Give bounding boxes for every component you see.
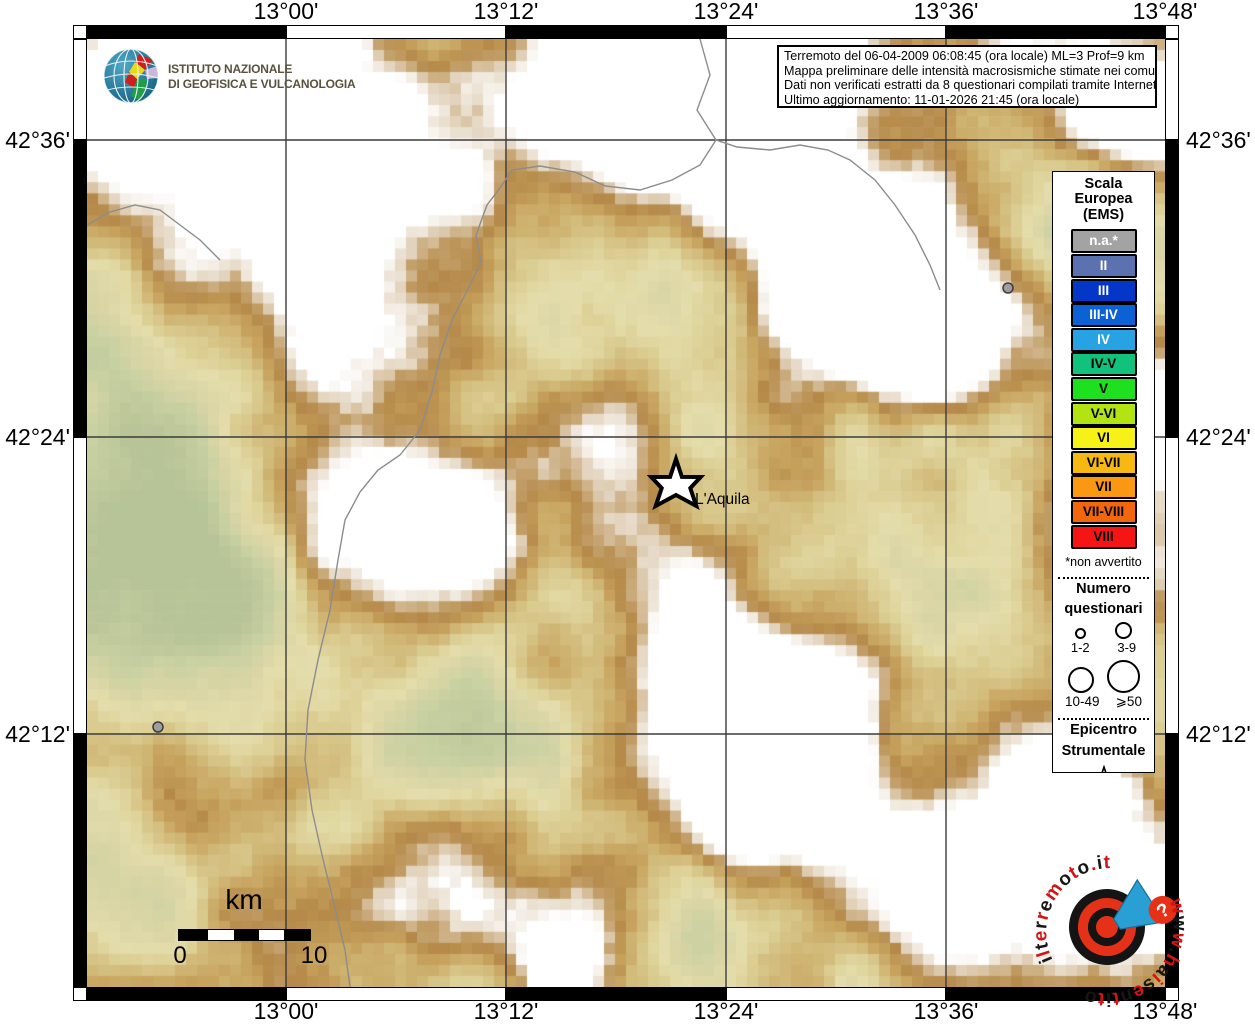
axis-label-lon-bottom-2: 13°24' bbox=[694, 998, 759, 1025]
legend-title-line: Europea bbox=[1053, 192, 1154, 207]
questionnaire-size-icon-small bbox=[1075, 628, 1086, 639]
questionnaire-bin-label: 3-9 bbox=[1117, 640, 1136, 655]
ingv-logo-text: ISTITUTO NAZIONALE DI GEOFISICA E VULCAN… bbox=[168, 62, 356, 91]
graticule-lines bbox=[87, 39, 1165, 987]
map-frame-segment bbox=[73, 39, 87, 140]
questionnaire-bin-label: 10-49 bbox=[1065, 694, 1100, 710]
questionnaire-bin-label: 1-2 bbox=[1071, 640, 1090, 655]
axis-label-lat-right-2: 42°12' bbox=[1186, 721, 1255, 748]
map-frame-segment bbox=[726, 25, 946, 39]
axis-label-lat-right-0: 42°36' bbox=[1186, 127, 1255, 154]
axis-label-lon-top-2: 13°24' bbox=[694, 0, 759, 25]
axis-label-lon-bottom-3: 13°36' bbox=[914, 998, 979, 1025]
axis-label-lat-left-2: 42°12' bbox=[0, 721, 70, 748]
scalebar-segment bbox=[208, 930, 234, 940]
info-line-event: Terremoto del 06-04-2009 06:08:45 (ora l… bbox=[784, 49, 1150, 64]
legend-footnote: *non avvertito bbox=[1053, 555, 1154, 569]
map-frame-segment bbox=[1165, 140, 1179, 437]
legend-title-line: Scala bbox=[1053, 177, 1154, 192]
legend-class-vii-viii: VII-VIII bbox=[1071, 500, 1137, 524]
scalebar-segment bbox=[234, 930, 259, 940]
ingv-org-line2: DI GEOFISICA E VULCANOLOGIA bbox=[168, 77, 356, 92]
legend-class-viii: VIII bbox=[1071, 525, 1137, 549]
scalebar-end-label: 10 bbox=[292, 942, 336, 970]
legend-class-iv-v: IV-V bbox=[1071, 352, 1137, 376]
epicenter-star-icon bbox=[1091, 765, 1117, 773]
map-frame-segment bbox=[946, 25, 1165, 39]
legend-class-vii: VII bbox=[1071, 475, 1137, 499]
epicenter-place-label: L'Aquila bbox=[695, 491, 750, 508]
haisentitoilterremoto-watermark: ? ilterremoto.it www.haisentito bbox=[1027, 847, 1187, 1007]
map-frame-segment bbox=[506, 987, 726, 1001]
map-frame-segment bbox=[286, 25, 506, 39]
ingv-logo-globe bbox=[101, 46, 161, 106]
axis-label-lon-bottom-0: 13°00' bbox=[254, 998, 319, 1025]
scalebar-segment bbox=[179, 930, 208, 940]
legend-title-line: (EMS) bbox=[1053, 208, 1154, 223]
legend-class-ii: II bbox=[1071, 254, 1137, 278]
scalebar-unit-label: km bbox=[204, 884, 284, 916]
axis-label-lon-top-3: 13°36' bbox=[914, 0, 979, 25]
legend-class-vi-vii: VI-VII bbox=[1071, 451, 1137, 475]
map-frame-segment bbox=[73, 25, 87, 39]
epicenter-section-title-line: Epicentro bbox=[1053, 720, 1154, 741]
epicenter-section-title-line: Strumentale bbox=[1053, 741, 1154, 762]
axis-label-lon-top-0: 13°00' bbox=[254, 0, 319, 25]
legend-class-iv: IV bbox=[1071, 328, 1137, 352]
questionnaire-bin-label: ⩾50 bbox=[1116, 694, 1142, 710]
info-line-updated: Ultimo aggiornamento: 11-01-2026 21:45 (… bbox=[784, 93, 1150, 108]
legend-class-iii: III bbox=[1071, 279, 1137, 303]
map-overlay: L'Aquila bbox=[87, 39, 1165, 987]
map-frame-segment bbox=[1165, 39, 1179, 140]
questionnaire-size-icon-xlarge bbox=[1107, 660, 1140, 693]
legend-class-vi: VI bbox=[1071, 426, 1137, 450]
questionnaire-size-icon-large bbox=[1068, 667, 1094, 693]
map-frame-segment bbox=[1165, 437, 1179, 734]
questionnaire-title-line: Numero bbox=[1053, 579, 1154, 599]
earthquake-info-box: Terremoto del 06-04-2009 06:08:45 (ora l… bbox=[777, 45, 1157, 108]
axis-label-lat-left-0: 42°36' bbox=[0, 127, 70, 154]
epicenter-star bbox=[651, 459, 700, 506]
questionnaire-size-icon-medium bbox=[1115, 622, 1132, 639]
map-frame-segment bbox=[73, 140, 87, 437]
questionnaire-dot bbox=[153, 722, 163, 732]
map-frame-segment bbox=[286, 987, 506, 1001]
axis-label-lon-bottom-1: 13°12' bbox=[474, 998, 539, 1025]
scalebar-start-label: 0 bbox=[164, 942, 196, 970]
legend-class-na: n.a.* bbox=[1071, 229, 1137, 253]
map-frame-segment bbox=[1165, 25, 1179, 39]
map-frame-segment bbox=[73, 987, 87, 1001]
axis-label-lon-top-4: 13°48' bbox=[1133, 0, 1198, 25]
info-line-source: Dati non verificati estratti da 8 questi… bbox=[784, 78, 1150, 93]
questionnaire-dot bbox=[1003, 283, 1013, 293]
axis-label-lat-left-1: 42°24' bbox=[0, 424, 70, 451]
scalebar-segment bbox=[284, 930, 310, 940]
ingv-org-line1: ISTITUTO NAZIONALE bbox=[168, 62, 356, 77]
map-frame-segment bbox=[73, 437, 87, 734]
legend-panel: Scala Europea (EMS) n.a.* II III III-IV … bbox=[1052, 171, 1155, 773]
map-frame-segment bbox=[726, 987, 946, 1001]
region-boundary-lines bbox=[87, 39, 940, 987]
legend-class-iii-iv: III-IV bbox=[1071, 303, 1137, 327]
scalebar-segment bbox=[259, 930, 284, 940]
scalebar bbox=[178, 929, 311, 941]
legend-class-v-vi: V-VI bbox=[1071, 402, 1137, 426]
questionnaire-title-line: questionari bbox=[1053, 599, 1154, 619]
map-frame-segment bbox=[73, 734, 87, 987]
seismic-intensity-map-page: { "header": { "logo": { "org_line1": "IS… bbox=[0, 0, 1255, 1024]
axis-label-lon-top-1: 13°12' bbox=[474, 0, 539, 25]
info-line-description: Mappa preliminare delle intensità macros… bbox=[784, 64, 1150, 79]
map-frame-segment bbox=[87, 987, 286, 1001]
axis-label-lat-right-1: 42°24' bbox=[1186, 424, 1255, 451]
legend-class-v: V bbox=[1071, 377, 1137, 401]
map-frame-segment bbox=[506, 25, 726, 39]
map-frame-segment bbox=[87, 25, 286, 39]
